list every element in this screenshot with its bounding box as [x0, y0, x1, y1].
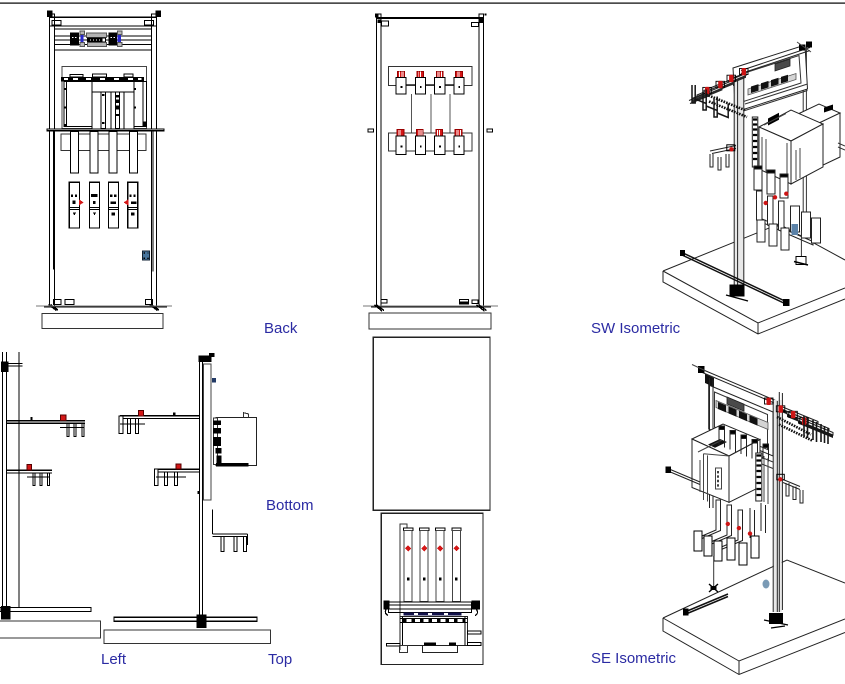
svg-text:Top: Top	[268, 651, 292, 668]
svg-text:Bottom: Bottom	[266, 497, 314, 514]
svg-text:SE Isometric: SE Isometric	[591, 650, 677, 667]
svg-text:SW Isometric: SW Isometric	[591, 320, 681, 337]
svg-text:Left: Left	[101, 651, 127, 668]
svg-text:Back: Back	[264, 320, 298, 337]
